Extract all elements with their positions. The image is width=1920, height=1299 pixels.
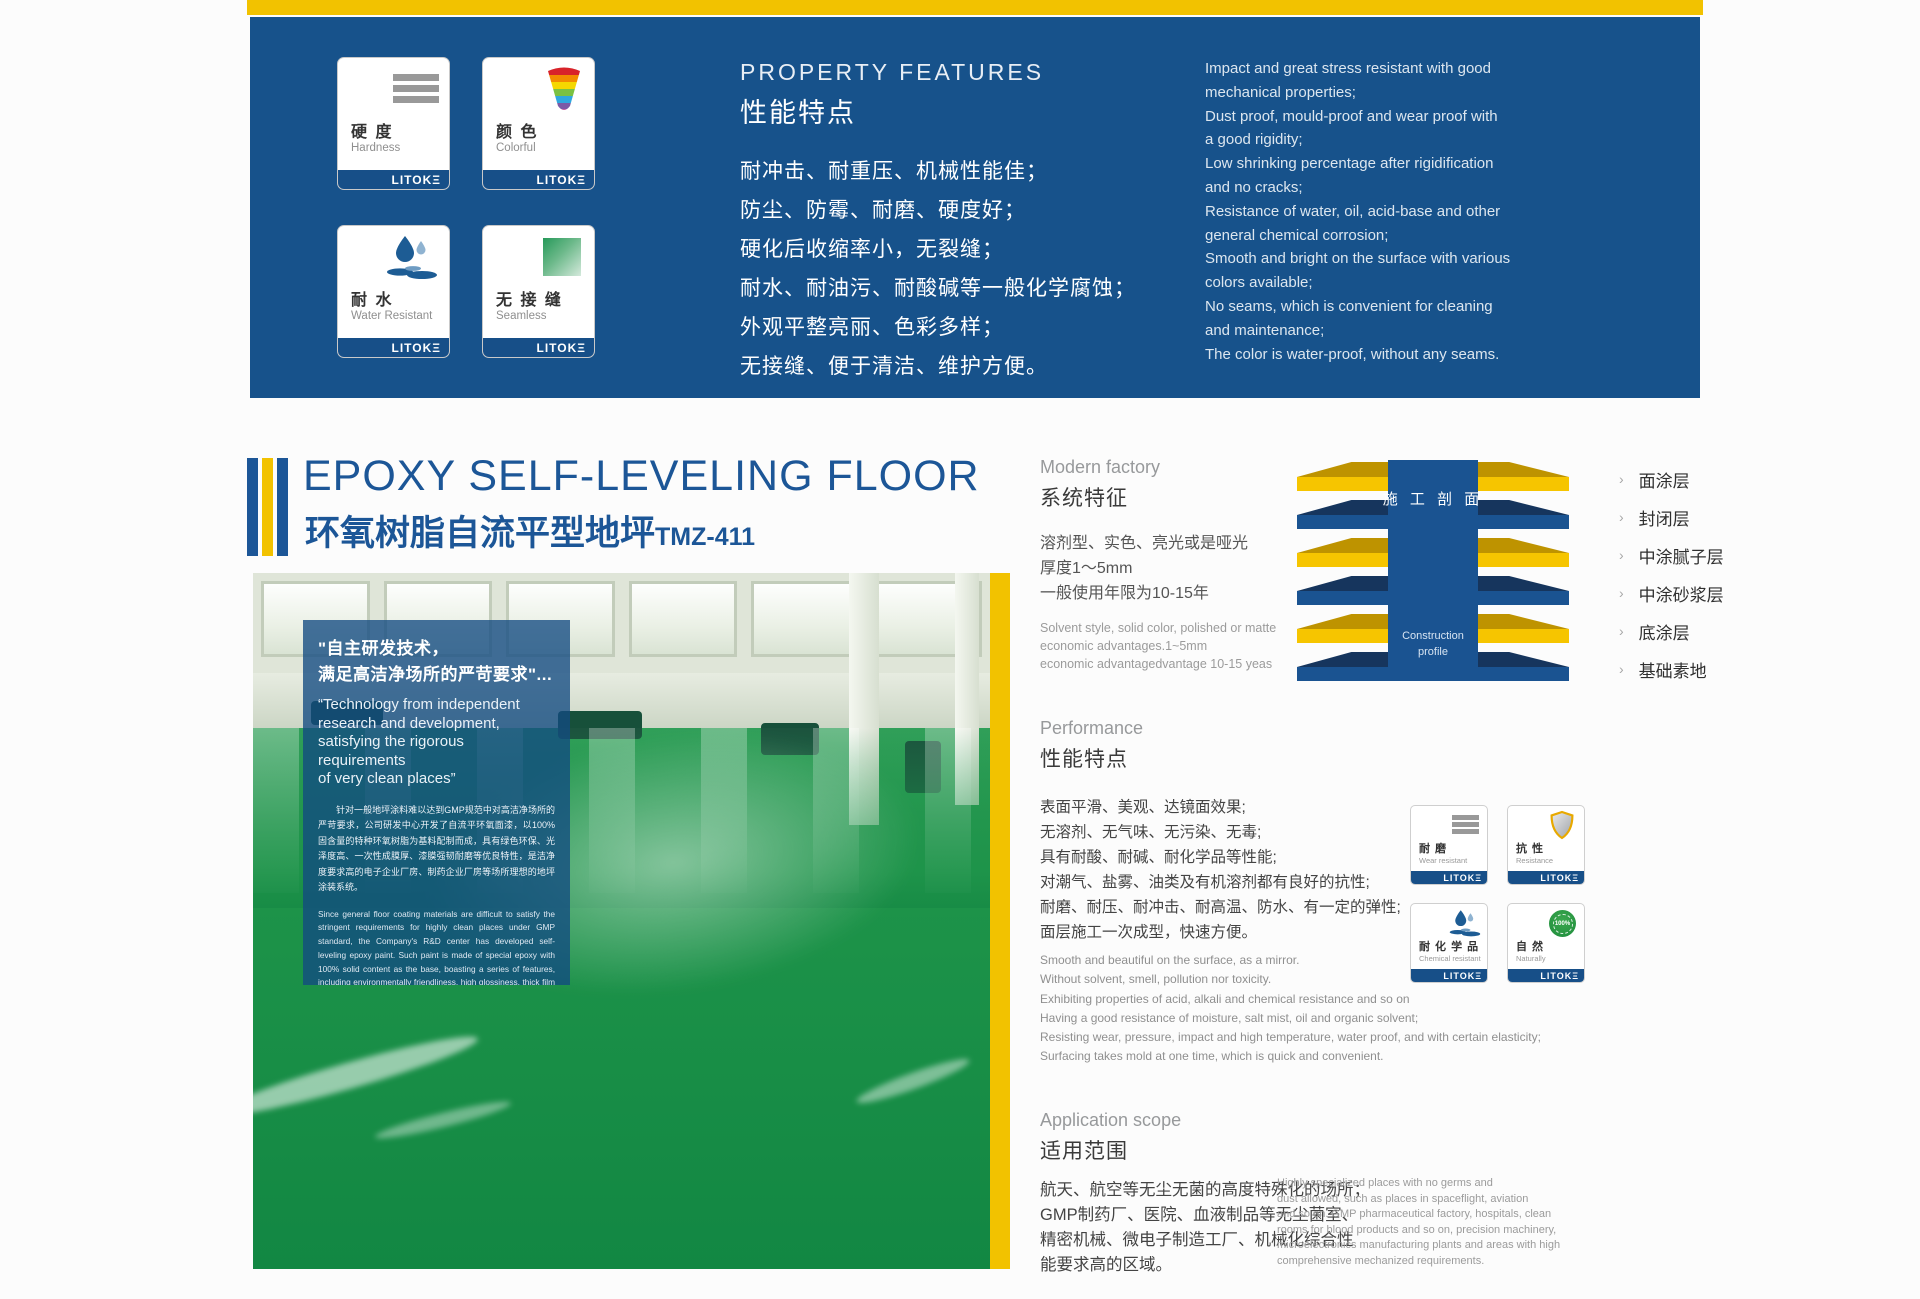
perf-card-body: 耐 磨 Wear resistant — [1411, 806, 1487, 871]
feature-line-en: a good rigidity; — [1205, 128, 1510, 152]
performance-line-zh: 面层施工一次成型，快速方便。 — [1040, 920, 1401, 945]
application-line-en: microelectronics manufacturing plants an… — [1277, 1238, 1560, 1254]
quote-en-line: satisfying the rigorous requirements — [318, 733, 555, 770]
spec-line-zh: 厚度1～5mm — [1040, 556, 1248, 581]
performance-line-en: Having a good resistance of moisture, sa… — [1040, 1009, 1541, 1028]
banner-heading-en: PROPERTY FEATURES — [740, 59, 1044, 86]
feature-card-label-zh: 耐 水 — [351, 286, 393, 310]
brand-logo: LITOKΞ — [1411, 871, 1487, 885]
perf-card-label-zh: 抗 性 — [1516, 840, 1544, 856]
layer-label-sealing: 封闭层 — [1619, 503, 1690, 531]
application-line-en: and so on. GMP pharmaceutical factory, h… — [1277, 1207, 1560, 1223]
spec-line-zh: 一般使用年限为10-15年 — [1040, 581, 1248, 606]
brand-logo: LITOKΞ — [1411, 969, 1487, 983]
feature-line-zh: 防尘、防霉、耐磨、硬度好； — [740, 191, 1136, 230]
product-model: TMZ-411 — [655, 523, 755, 551]
seamless-gradient-icon — [543, 238, 581, 276]
feature-line-en: general chemical corrosion; — [1205, 224, 1510, 248]
feature-card-body: 耐 水 Water Resistant — [338, 226, 449, 338]
rainbow-cone-icon — [544, 66, 584, 116]
layer-label-topcoat: 面涂层 — [1619, 465, 1690, 493]
layer-label-base: 基础素地 — [1619, 655, 1707, 683]
application-line-en: rooms for blood products and so on, prec… — [1277, 1223, 1560, 1239]
spec-line-en: economic advantages.1~5mm — [1040, 637, 1276, 655]
banner-features-en: Impact and great stress resistant with g… — [1205, 57, 1510, 366]
page-title-zh-text: 环氧树脂自流平型地坪 — [305, 514, 655, 553]
water-drops-icon — [383, 234, 441, 280]
spec-line-en: economic advantagedvantage 10-15 yeas — [1040, 655, 1276, 673]
chevron-right-icon — [1619, 471, 1624, 487]
perf-card-naturally: 100% 自 然 Naturally LITOKΞ — [1507, 903, 1585, 983]
spec-line-en: Solvent style, solid color, polished or … — [1040, 619, 1276, 637]
floor-streak — [373, 1096, 512, 1143]
chevron-right-icon — [1619, 585, 1624, 601]
perf-card-body: 100% 自 然 Naturally — [1508, 904, 1584, 969]
perf-card-wear-resistant: 耐 磨 Wear resistant LITOKΞ — [1410, 805, 1488, 885]
page-title-en: EPOXY SELF-LEVELING FLOOR — [303, 452, 980, 501]
layer-label-text: 中涂腻子层 — [1639, 543, 1724, 568]
feature-line-en: Dust proof, mould-proof and wear proof w… — [1205, 105, 1510, 129]
chevron-right-icon — [1619, 661, 1624, 677]
layer-label-text: 基础素地 — [1639, 657, 1707, 682]
performance-line-en: Surfacing takes mold at one time, which … — [1040, 1047, 1541, 1066]
layer-label-text: 封闭层 — [1639, 505, 1690, 530]
performance-line-zh: 耐磨、耐压、耐冲击、耐高温、防水、有一定的弹性; — [1040, 895, 1401, 920]
perf-card-chemical-resistant: 耐 化 学 品 Chemical resistant LITOKΞ — [1410, 903, 1488, 983]
performance-bullets-zh: 表面平滑、美观、达镜面效果;无溶剂、无气味、无污染、无毒;具有耐酸、耐碱、耐化学… — [1040, 795, 1401, 945]
performance-line-en: Exhibiting properties of acid, alkali an… — [1040, 990, 1541, 1009]
feature-card-colorful: 颜 色 Colorful LITOKΞ — [482, 57, 595, 190]
feature-line-zh: 无接缝、便于清洁、维护方便。 — [740, 347, 1136, 386]
feature-card-water-resistant: 耐 水 Water Resistant LITOKΞ — [337, 225, 450, 358]
property-features-banner: 硬 度 Hardness LITOKΞ — [250, 17, 1700, 398]
performance-line-en: Resisting wear, pressure, impact and hig… — [1040, 1028, 1541, 1047]
overlay-paragraph-zh: 针对一般地坪涂料难以达到GMP规范中对高洁净场所的严苛要求，公司研发中心开发了自… — [318, 803, 555, 896]
modern-factory-specs-en: Solvent style, solid color, polished or … — [1040, 619, 1276, 673]
feature-line-en: Low shrinking percentage after rigidific… — [1205, 152, 1510, 176]
brand-logo: LITOKΞ — [1508, 969, 1584, 983]
application-line-en: comprehensive mechanized requirements. — [1277, 1254, 1560, 1270]
perf-card-label-en: Naturally — [1516, 954, 1546, 963]
construction-profile-diagram: 施 工 剖 面 Construction profile 面涂层 封闭层 中涂腻… — [1297, 455, 1737, 685]
feature-line-en: colors available; — [1205, 271, 1510, 295]
wear-bars-icon — [1452, 815, 1479, 834]
modern-factory-heading-zh: 系统特征 — [1040, 482, 1128, 512]
chevron-right-icon — [1619, 509, 1624, 525]
brand-logo: LITOKΞ — [338, 338, 449, 358]
application-lines-en: Highly specialized places with no germs … — [1277, 1176, 1560, 1269]
page-title-zh: 环氧树脂自流平型地坪TMZ-411 — [305, 505, 755, 556]
spec-line-zh: 溶剂型、实色、亮光或是哑光 — [1040, 531, 1248, 556]
performance-line-zh: 具有耐酸、耐碱、耐化学品等性能; — [1040, 845, 1401, 870]
chemical-drops-icon — [1447, 909, 1483, 937]
perf-card-label-zh: 耐 磨 — [1419, 840, 1447, 856]
feature-line-zh: 硬化后收缩率小，无裂缝； — [740, 230, 1136, 269]
performance-heading-en: Performance — [1040, 718, 1143, 739]
feature-line-zh: 耐冲击、耐重压、机械性能佳； — [740, 152, 1136, 191]
perf-card-label-zh: 耐 化 学 品 — [1419, 938, 1479, 954]
chevron-right-icon — [1619, 547, 1624, 563]
banner-heading-zh: 性能特点 — [740, 91, 856, 130]
floor-streak — [854, 1053, 972, 1109]
quote-zh-line1: "自主研发技术， — [318, 636, 555, 662]
eco-100-badge-icon: 100% — [1549, 910, 1576, 937]
layer-label-mortar: 中涂砂浆层 — [1619, 579, 1724, 607]
feature-card-body: 颜 色 Colorful — [483, 58, 594, 170]
perf-card-label-en: Chemical resistant — [1419, 954, 1481, 963]
floor-photo: "自主研发技术， 满足高洁净场所的严苛要求"... “Technology fr… — [253, 573, 990, 1269]
application-heading-zh: 适用范围 — [1040, 1135, 1128, 1165]
perf-card-label-zh: 自 然 — [1516, 938, 1544, 954]
application-heading-en: Application scope — [1040, 1110, 1181, 1131]
hardness-bars-icon — [393, 74, 439, 103]
feature-card-seamless: 无 接 缝 Seamless LITOKΞ — [482, 225, 595, 358]
overlay-paragraph-en: Since general floor coating materials ar… — [318, 908, 555, 986]
feature-card-label-zh: 硬 度 — [351, 118, 393, 142]
quote-zh-line2: 满足高洁净场所的严苛要求"... — [318, 662, 555, 688]
feature-line-en: The color is water-proof, without any se… — [1205, 343, 1510, 367]
feature-line-en: No seams, which is convenient for cleani… — [1205, 295, 1510, 319]
layer-label-text: 底涂层 — [1639, 619, 1690, 644]
photo-yellow-stripe — [990, 573, 1010, 1269]
brand-logo: LITOKΞ — [1508, 871, 1584, 885]
feature-line-en: Resistance of water, oil, acid-base and … — [1205, 200, 1510, 224]
quote-en-line: research and development, — [318, 715, 555, 734]
performance-line-zh: 表面平滑、美观、达镜面效果; — [1040, 795, 1401, 820]
perf-card-resistance: 抗 性 Resistance LITOKΞ — [1507, 805, 1585, 885]
feature-card-hardness: 硬 度 Hardness LITOKΞ — [337, 57, 450, 190]
feature-card-label-en: Water Resistant — [351, 310, 432, 322]
feature-card-body: 无 接 缝 Seamless — [483, 226, 594, 338]
chevron-right-icon — [1619, 623, 1624, 639]
quote-en-line: of very clean places” — [318, 770, 555, 789]
layer-label-primer: 底涂层 — [1619, 617, 1690, 645]
feature-card-label-zh: 颜 色 — [496, 118, 538, 142]
feature-line-en: Smooth and bright on the surface with va… — [1205, 247, 1510, 271]
title-bar-blue-2 — [277, 458, 288, 556]
feature-card-body: 硬 度 Hardness — [338, 58, 449, 170]
construction-profile-en-line2: profile — [1402, 644, 1464, 660]
eco-badge-text: 100% — [1553, 914, 1573, 934]
construction-profile-label-zh: 施 工 剖 面 — [1383, 488, 1484, 509]
performance-line-zh: 对潮气、盐雾、油类及有机溶剂都有良好的抗性; — [1040, 870, 1401, 895]
perf-card-label-en: Resistance — [1516, 856, 1553, 865]
feature-line-en: mechanical properties; — [1205, 81, 1510, 105]
feature-card-label-zh: 无 接 缝 — [496, 286, 563, 310]
layer-label-putty: 中涂腻子层 — [1619, 541, 1724, 569]
quote-overlay: "自主研发技术， 满足高洁净场所的严苛要求"... “Technology fr… — [303, 620, 570, 985]
quote-en-line: “Technology from independent — [318, 696, 555, 715]
brand-logo: LITOKΞ — [338, 170, 449, 190]
quote-en: “Technology from independentresearch and… — [318, 696, 555, 789]
feature-line-en: and no cracks; — [1205, 176, 1510, 200]
brochure-page: 硬 度 Hardness LITOKΞ — [0, 0, 1920, 1299]
perf-card-body: 抗 性 Resistance — [1508, 806, 1584, 871]
feature-card-label-en: Hardness — [351, 142, 400, 154]
layer-label-text: 中涂砂浆层 — [1639, 581, 1724, 606]
title-bar-blue-1 — [247, 458, 258, 556]
perf-card-label-en: Wear resistant — [1419, 856, 1467, 865]
performance-heading-zh: 性能特点 — [1040, 743, 1128, 773]
feature-line-en: Impact and great stress resistant with g… — [1205, 57, 1510, 81]
title-bar-yellow — [262, 458, 273, 556]
top-accent-bar — [247, 0, 1703, 15]
brand-logo: LITOKΞ — [483, 338, 594, 358]
application-line-en: dust allowed, such as places in spacefli… — [1277, 1192, 1560, 1208]
feature-line-en: and maintenance; — [1205, 319, 1510, 343]
brand-logo: LITOKΞ — [483, 170, 594, 190]
shield-icon — [1549, 810, 1575, 840]
construction-profile-center-block: 施 工 剖 面 Construction profile — [1388, 460, 1478, 672]
feature-card-label-en: Colorful — [496, 142, 536, 154]
application-line-en: Highly specialized places with no germs … — [1277, 1176, 1560, 1192]
banner-features-zh: 耐冲击、耐重压、机械性能佳；防尘、防霉、耐磨、硬度好；硬化后收缩率小，无裂缝；耐… — [740, 152, 1136, 386]
perf-card-body: 耐 化 学 品 Chemical resistant — [1411, 904, 1487, 969]
performance-line-zh: 无溶剂、无气味、无污染、无毒; — [1040, 820, 1401, 845]
layer-label-text: 面涂层 — [1639, 467, 1690, 492]
feature-line-zh: 外观平整亮丽、色彩多样； — [740, 308, 1136, 347]
feature-card-label-en: Seamless — [496, 310, 547, 322]
modern-factory-heading-en: Modern factory — [1040, 457, 1160, 478]
modern-factory-specs-zh: 溶剂型、实色、亮光或是哑光厚度1～5mm一般使用年限为10-15年 — [1040, 531, 1248, 606]
construction-profile-label-en: Construction profile — [1402, 628, 1464, 660]
construction-profile-en-line1: Construction — [1402, 628, 1464, 644]
feature-line-zh: 耐水、耐油污、耐酸碱等一般化学腐蚀； — [740, 269, 1136, 308]
